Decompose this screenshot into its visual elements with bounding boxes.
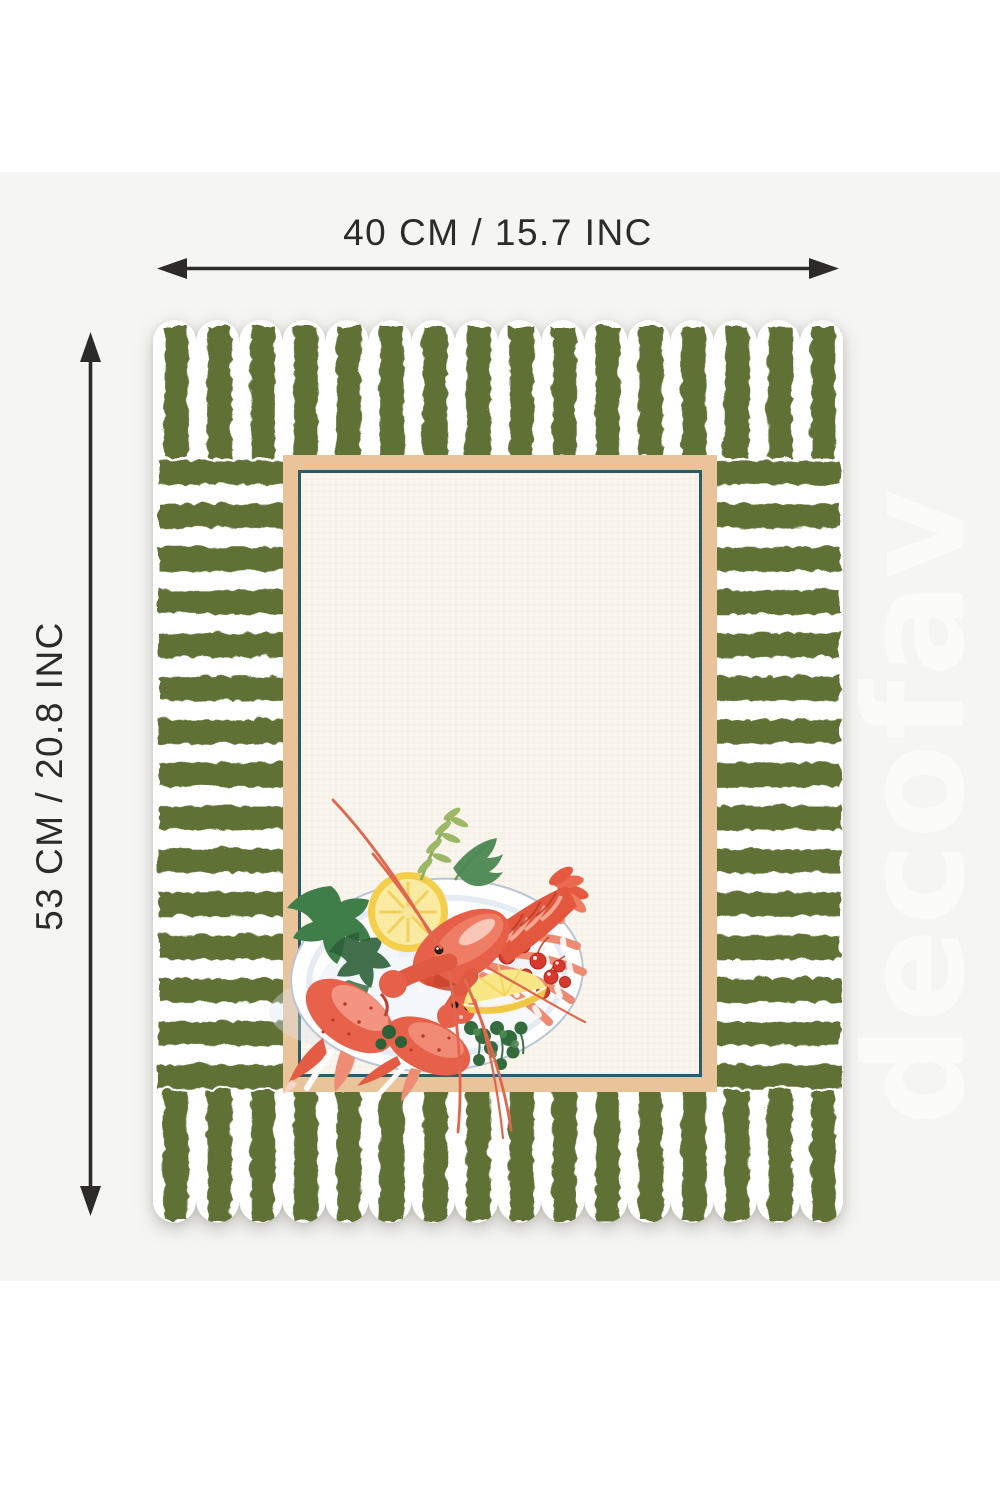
placemat-scalloped-mat: [153, 320, 843, 1223]
arrowhead-right-icon: [809, 258, 839, 279]
width-dimension-arrow: [153, 249, 843, 289]
height-dimension-arrow: [71, 326, 111, 1222]
watermark-text: decofav: [835, 485, 996, 1125]
arrowhead-down-icon: [80, 1186, 101, 1216]
arrowhead-up-icon: [80, 332, 101, 362]
width-dimension-label: 40 CM / 15.7 INC: [153, 212, 843, 254]
arrowhead-left-icon: [157, 258, 187, 279]
placemat-image: [153, 320, 843, 1223]
height-dimension-label: 53 CM / 20.8 INC: [29, 621, 71, 931]
